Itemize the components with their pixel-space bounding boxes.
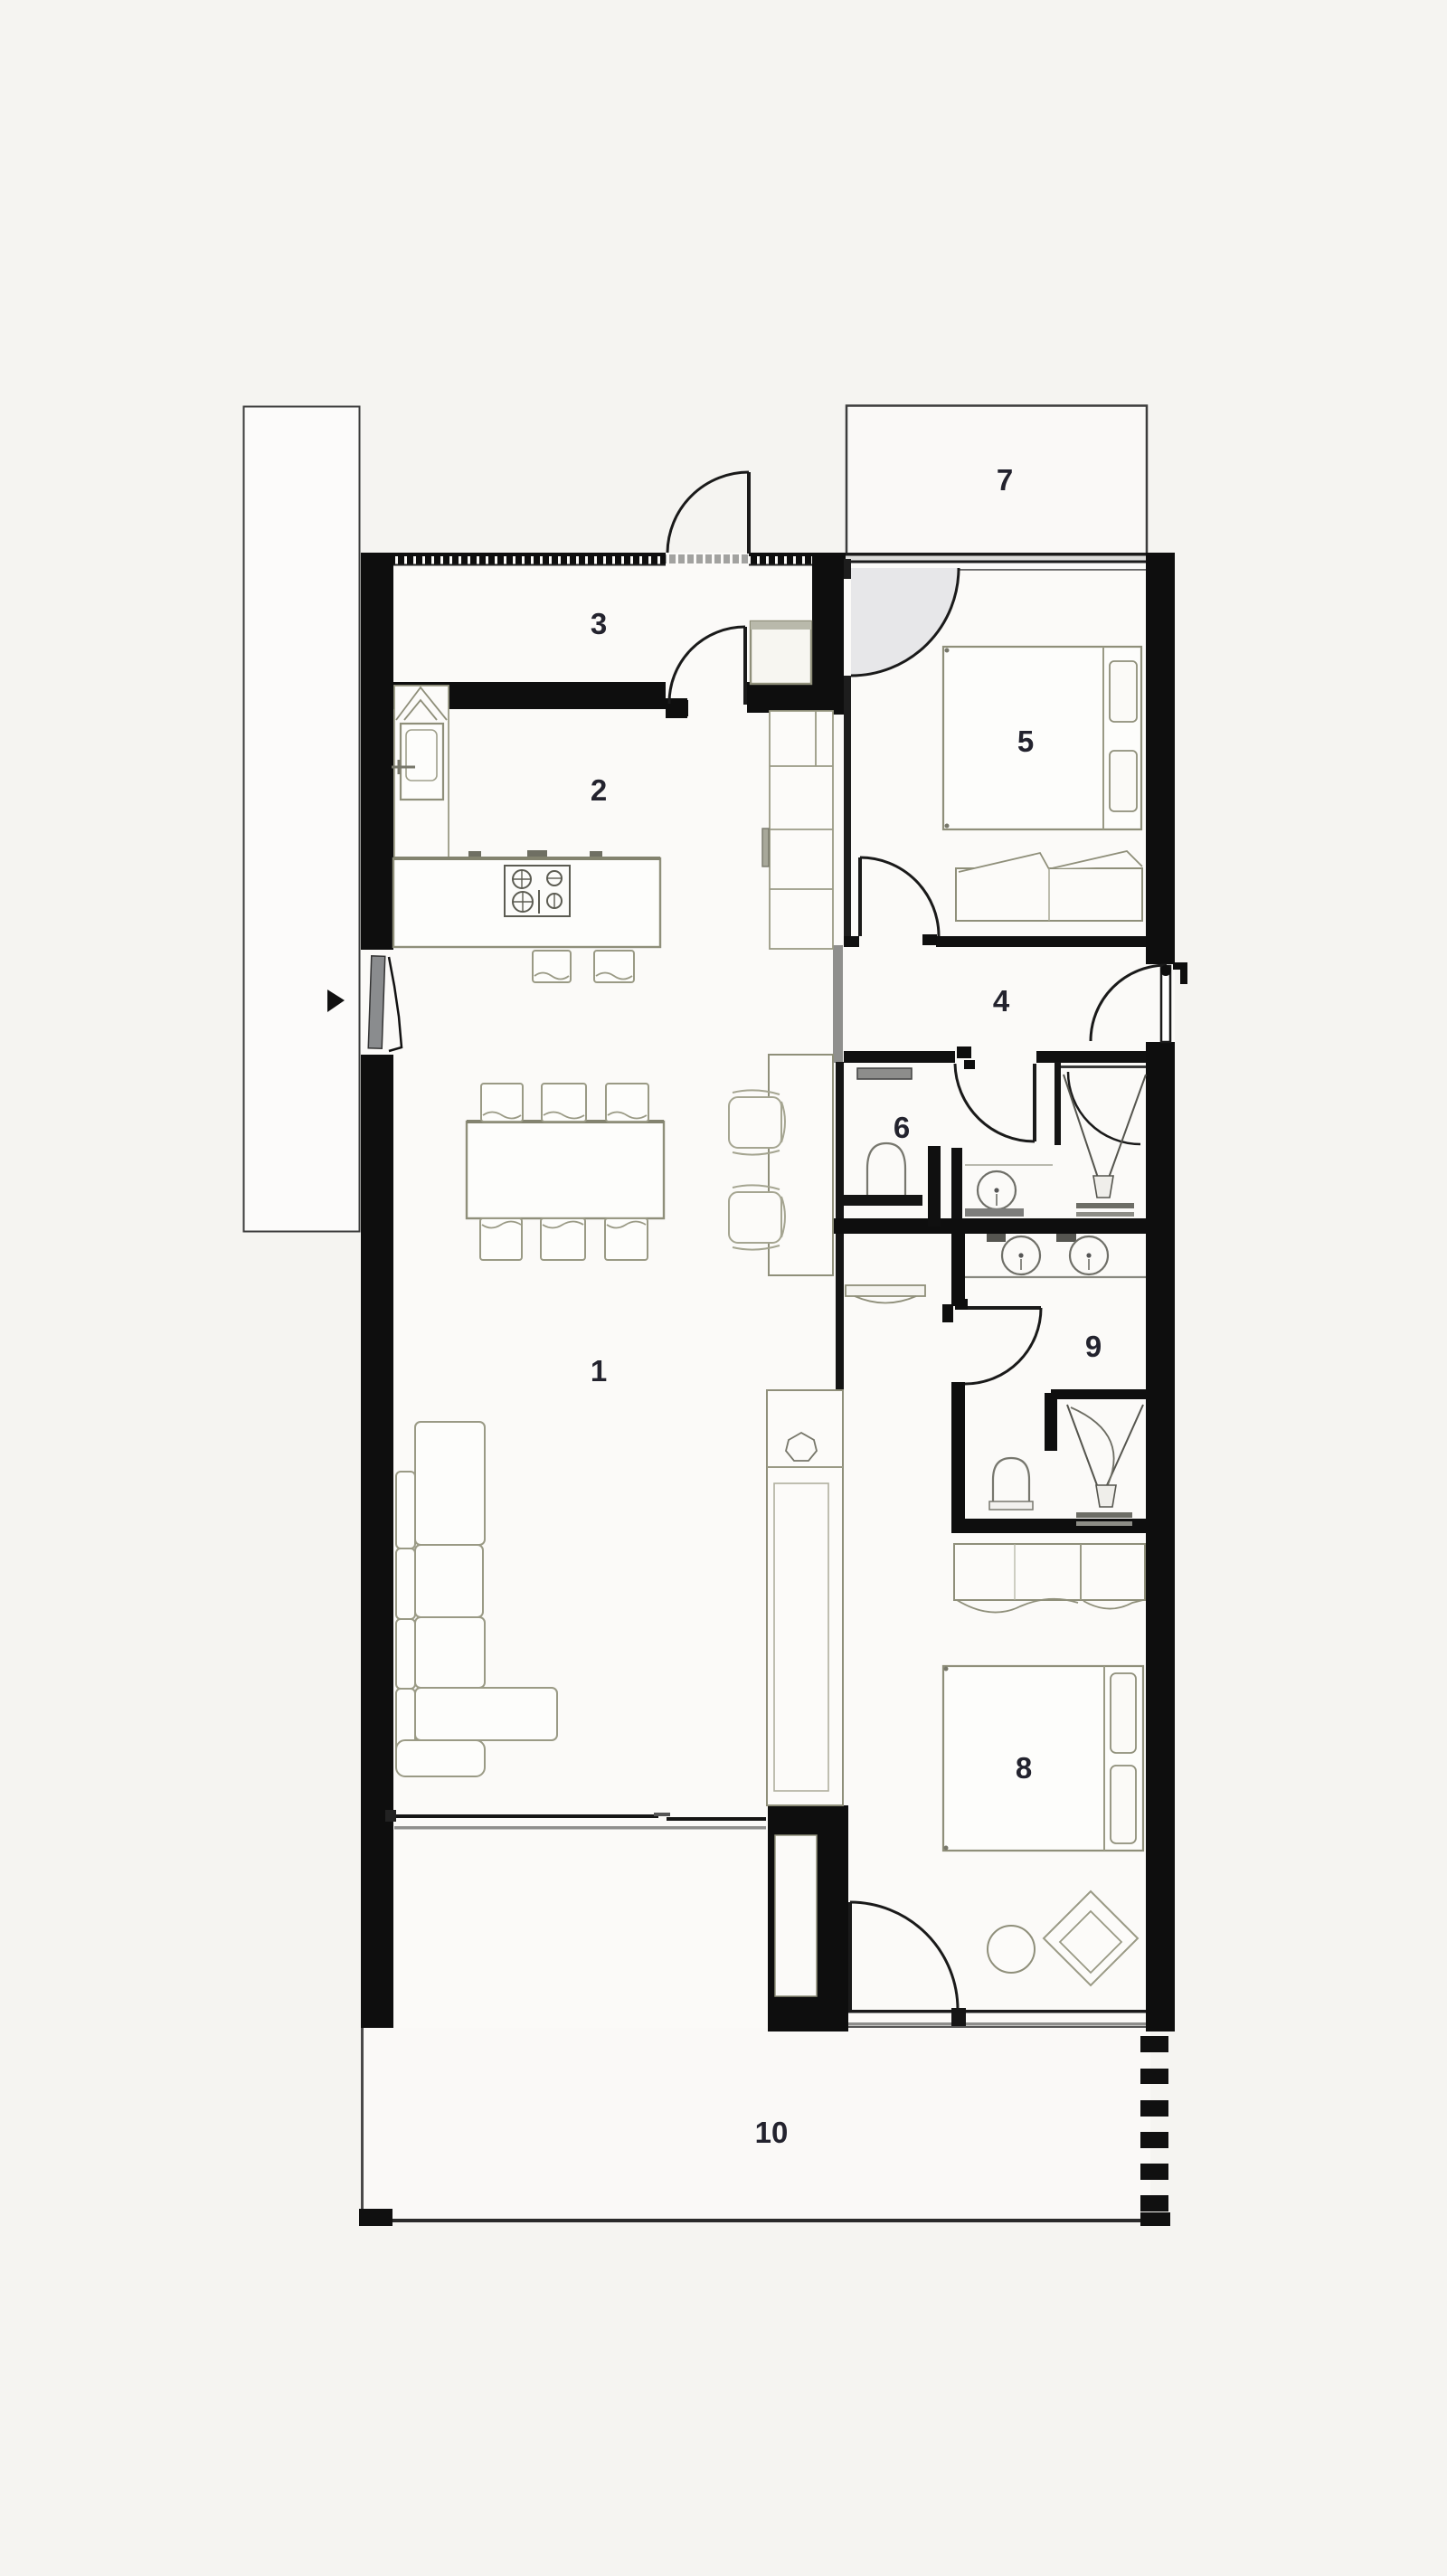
svg-text:7: 7	[997, 463, 1013, 497]
svg-text:6: 6	[894, 1111, 910, 1144]
svg-text:2: 2	[591, 773, 607, 807]
svg-text:1: 1	[591, 1354, 607, 1387]
svg-text:10: 10	[755, 2116, 789, 2149]
svg-text:8: 8	[1016, 1751, 1032, 1785]
svg-text:9: 9	[1085, 1330, 1102, 1363]
svg-text:4: 4	[993, 984, 1010, 1018]
svg-text:3: 3	[591, 607, 607, 640]
svg-text:5: 5	[1017, 724, 1034, 758]
